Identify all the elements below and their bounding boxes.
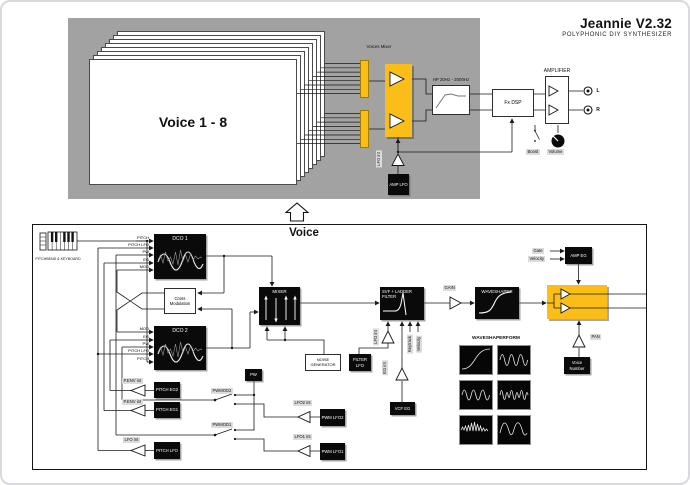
pan-amp-icon	[573, 335, 585, 347]
penv-int-label: P.ENV int	[122, 378, 143, 384]
pitchbend-wheel-icon	[40, 233, 46, 250]
waveshape-tile	[497, 345, 531, 375]
output-l-label: L	[594, 88, 602, 94]
eg-int-label: EG int	[382, 361, 388, 376]
pwmod1-label: PWMOD1	[211, 422, 233, 428]
velocity-label: Velocity	[416, 335, 422, 352]
dco1-input-label: MOD	[115, 264, 149, 270]
vca-block	[547, 285, 607, 319]
voices-mixer-block	[385, 64, 412, 137]
lfo-int-label: LFO int	[373, 329, 379, 346]
waveshape-tile	[497, 380, 531, 410]
hp-filter-label: HP 20Hz - 2000Hz	[414, 77, 488, 82]
hp-filter-box	[432, 85, 470, 115]
dco2-input-label: PITCH LFO	[115, 348, 149, 354]
voices-mixer-label: Voices Mixer	[354, 44, 404, 49]
pwm-lfo2-box: PWM LFO2	[320, 409, 345, 426]
voice-section-title: Voice	[276, 227, 332, 241]
amp-lfo-amp-icon	[392, 154, 404, 166]
dco1-box: DCO 1	[154, 234, 206, 279]
amp-symbol-icon	[298, 446, 310, 457]
amp-symbol-icon	[131, 385, 145, 396]
amplifier-box	[545, 76, 569, 124]
dco2-input-label: MOD	[115, 326, 149, 332]
pw-box: PW	[245, 369, 262, 381]
page-title: Jeannie V2.32	[562, 16, 672, 31]
lfo-int-label: LFO int	[123, 437, 140, 443]
keyboard-icon	[40, 232, 77, 250]
amp-symbol-icon	[131, 405, 145, 416]
pitch-eg1-box: PITCH EG1	[154, 402, 180, 418]
sum-bar-1	[360, 60, 369, 98]
up-arrow-icon	[286, 203, 308, 221]
title-block: Jeannie V2.32 POLYPHONIC DIY SYNTHESIZER	[562, 16, 672, 38]
dco1-input-label: EG	[115, 257, 149, 263]
pitch-lfo-box: PITCH LFO	[154, 442, 180, 459]
lfo-int-label: LFO int	[376, 151, 382, 168]
amp-symbol-icon	[382, 331, 394, 343]
lfo2-int-label: LFO2 int	[293, 400, 312, 406]
pwmod2-label: PWMOD2	[211, 388, 233, 394]
amplifier-label: AMPLIFIER	[536, 68, 578, 74]
voice-card-label: Voice 1 - 8	[159, 114, 227, 130]
filter-lfo-box: FILTER LFO	[349, 354, 371, 371]
voice-card-front: Voice 1 - 8	[89, 59, 297, 185]
velocity-label: Velocity	[528, 256, 545, 262]
voice-number-box: Voice Number	[564, 357, 590, 374]
dco2-input-label: PW	[115, 341, 149, 347]
output-jacks	[584, 87, 592, 114]
waveshape-tile	[459, 415, 493, 445]
output-r-label: R	[594, 107, 602, 113]
waveshape-tile	[459, 345, 493, 375]
amp-lfo-box: AMP LFO	[388, 174, 409, 195]
amp-symbol-icon	[131, 445, 145, 456]
noise-generator-box: NOISE GENERATOR	[305, 354, 341, 371]
pwm-lfo1-box: PWM LFO1	[320, 443, 345, 460]
fx-dsp-box: Fx DSP	[492, 89, 534, 117]
waveshaperform-label: WAVESHAPERFORM	[454, 336, 538, 342]
waveshape-tile	[497, 415, 531, 445]
vcf-eg-box: VCF EG	[390, 402, 415, 415]
volume-knob-icon	[552, 135, 565, 148]
amp-symbol-icon	[396, 368, 408, 380]
dco1-input-label: PITCH	[115, 235, 149, 241]
boost-switch-label: Boost	[526, 149, 540, 155]
volume-knob-label: Volume	[547, 149, 564, 155]
waveshaper-box: WAVESHAPER	[475, 287, 519, 319]
dco1-input-label: PITCH LFO	[115, 242, 149, 248]
gain-label: GAIN	[443, 285, 456, 291]
mixer-box: MIXER	[259, 287, 300, 325]
dco1-input-label: PW	[115, 249, 149, 255]
dco2-input-label: PITCH	[115, 356, 149, 362]
pan-label: PAN	[590, 334, 601, 340]
dco2-input-label: EG	[115, 334, 149, 340]
amp-symbol-icon	[298, 412, 310, 423]
page-subtitle: POLYPHONIC DIY SYNTHESIZER	[562, 32, 672, 38]
sum-bar-2	[360, 110, 369, 148]
svf-ladder-filter-box: SVF + LADDER FILTER	[380, 287, 424, 320]
synth-block-diagram: Jeannie V2.32 POLYPHONIC DIY SYNTHESIZER	[0, 0, 690, 485]
cross-modulation-box: Cross Modulation	[164, 288, 196, 314]
gate-label: Gate	[532, 248, 544, 254]
dco2-box: DCO 2	[154, 326, 206, 370]
lfo1-int-label: LFO1 int	[293, 434, 312, 440]
keytrack-label: Keytrack	[407, 334, 413, 353]
penv-int-label: P.ENV int	[122, 399, 143, 405]
waveshape-tile	[459, 380, 493, 410]
keyboard-label: PITCHBEND & KEYBOARD	[34, 257, 82, 261]
pitch-eg2-box: PITCH EG2	[154, 382, 180, 398]
amp-eg-box: AMP EG	[565, 247, 592, 264]
gain-amp-icon	[450, 297, 461, 309]
